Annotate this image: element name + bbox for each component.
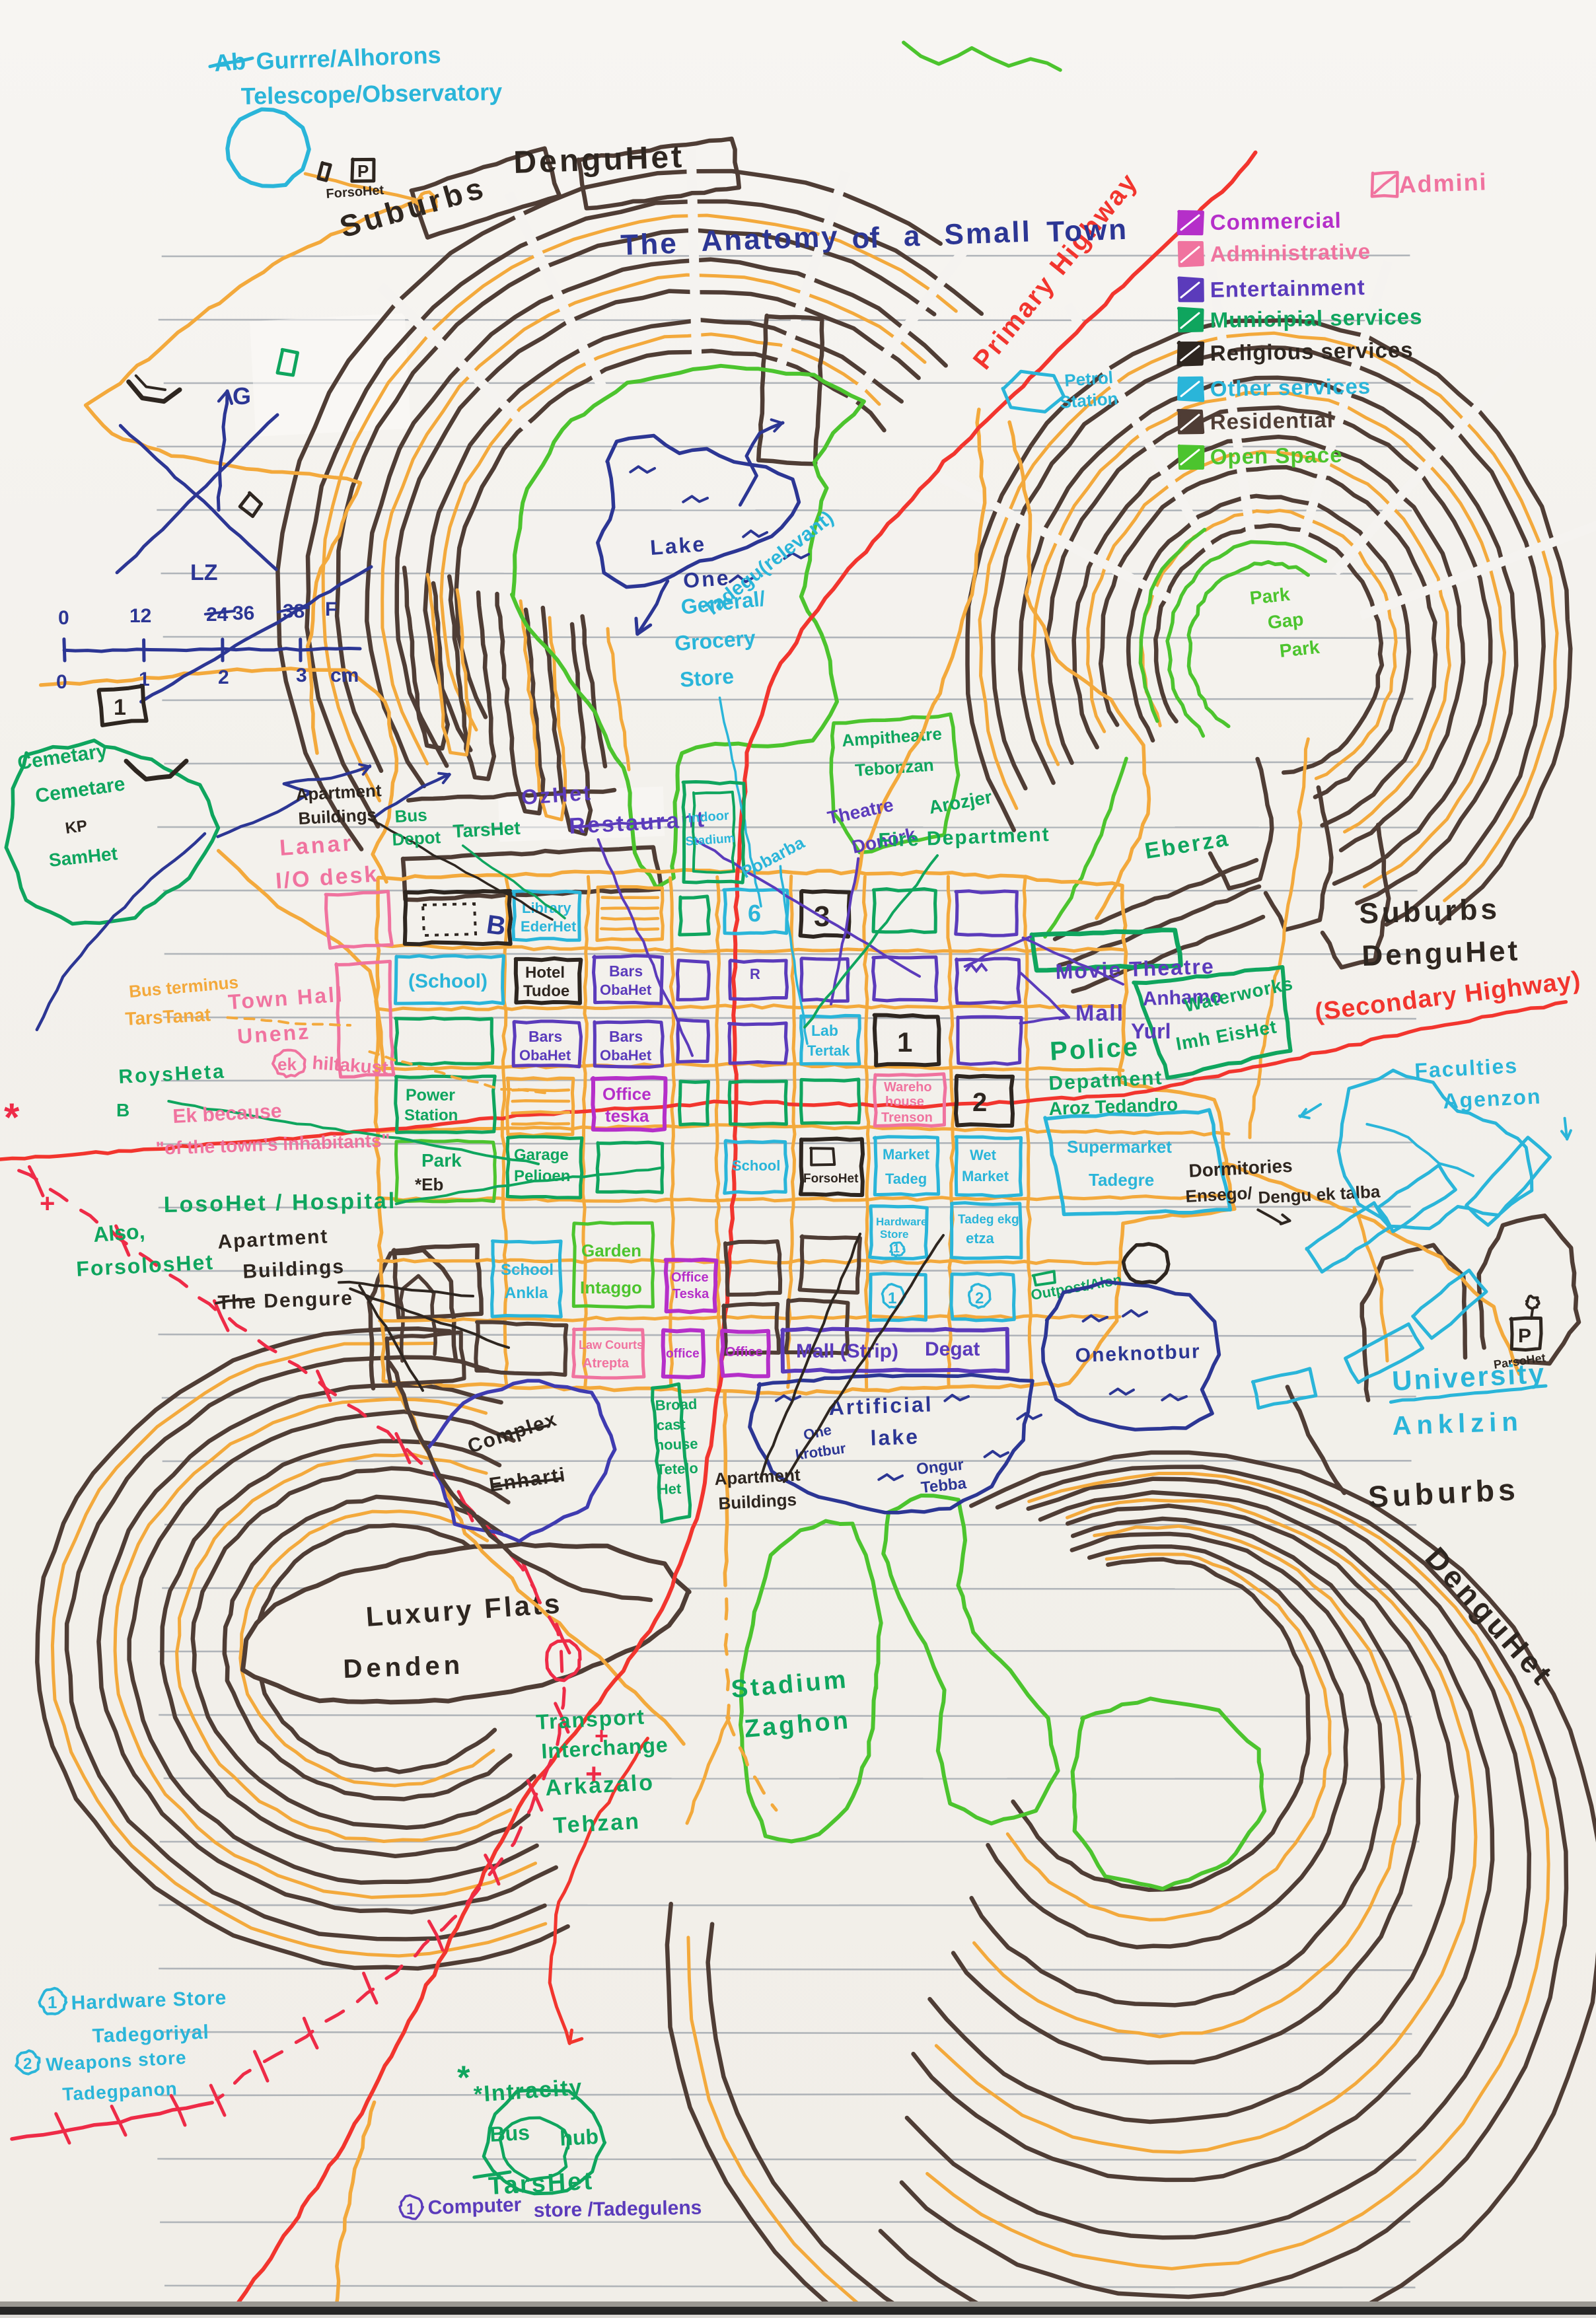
svg-text:Store: Store	[880, 1228, 908, 1241]
svg-text:Indoor: Indoor	[688, 809, 730, 826]
svg-text:Other services: Other services	[1210, 374, 1371, 401]
svg-text:ObaHet: ObaHet	[600, 1047, 652, 1064]
svg-text:1: 1	[406, 2200, 415, 2218]
svg-text:School: School	[732, 1157, 780, 1174]
svg-text:Religious services: Religious services	[1210, 338, 1413, 365]
svg-text:0: 0	[58, 607, 69, 629]
svg-text:Administrative: Administrative	[1210, 239, 1371, 266]
svg-text:LZ: LZ	[190, 560, 218, 585]
svg-text:2: 2	[972, 1088, 987, 1117]
svg-text:Bus: Bus	[489, 2120, 530, 2146]
svg-text:Station: Station	[1059, 388, 1118, 412]
svg-text:of: of	[852, 222, 881, 255]
svg-text:Anklzin: Anklzin	[1392, 1407, 1524, 1441]
svg-text:Hotel: Hotel	[525, 964, 565, 982]
svg-text:Ensego/: Ensego/	[1185, 1183, 1253, 1206]
svg-text:Office: Office	[602, 1084, 651, 1104]
svg-text:ForsoHet: ForsoHet	[803, 1172, 859, 1186]
svg-text:Garden: Garden	[581, 1241, 641, 1260]
svg-text:Intaggo: Intaggo	[580, 1278, 642, 1297]
svg-text:Admini: Admini	[1398, 168, 1488, 198]
svg-text:Tadegre: Tadegre	[1089, 1170, 1154, 1190]
svg-text:a: a	[904, 220, 920, 252]
svg-text:Police: Police	[1049, 1032, 1140, 1066]
svg-text:Market: Market	[962, 1168, 1009, 1184]
svg-text:store /Tadegulens: store /Tadegulens	[534, 2197, 702, 2222]
svg-text:cm: cm	[330, 665, 359, 686]
svg-text:2: 2	[23, 2055, 32, 2073]
svg-text:Anatomy: Anatomy	[701, 221, 840, 258]
svg-text:Municipial services: Municipial services	[1210, 304, 1422, 332]
svg-text:DenguHet: DenguHet	[513, 139, 685, 180]
svg-text:Buildings: Buildings	[718, 1490, 797, 1513]
svg-text:Also,: Also,	[92, 1219, 146, 1247]
svg-text:Park: Park	[421, 1150, 462, 1171]
svg-text:hub: hub	[559, 2124, 598, 2150]
svg-text:teska: teska	[605, 1106, 649, 1126]
svg-text:2: 2	[975, 1289, 984, 1307]
svg-text:house: house	[655, 1435, 698, 1453]
svg-text:Open Space: Open Space	[1210, 443, 1342, 469]
svg-text:Town: Town	[1046, 213, 1129, 248]
svg-text:TarsHet: TarsHet	[453, 818, 521, 842]
svg-text:Bars: Bars	[528, 1028, 562, 1045]
svg-text:F: F	[325, 598, 337, 620]
svg-text:Het: Het	[657, 1480, 682, 1498]
svg-text:Artificial: Artificial	[828, 1393, 933, 1420]
svg-text:*: *	[4, 1095, 20, 1140]
svg-text:R: R	[750, 966, 760, 982]
svg-text:Depot: Depot	[392, 827, 441, 850]
svg-text:+: +	[595, 1722, 608, 1749]
svg-text:Suburbs: Suburbs	[1359, 893, 1501, 930]
svg-text:EderHet: EderHet	[521, 918, 577, 935]
svg-text:Park: Park	[1249, 584, 1291, 608]
svg-text:Lanar: Lanar	[279, 830, 355, 861]
svg-text:Lab: Lab	[811, 1022, 838, 1039]
svg-text:Petrol: Petrol	[1064, 367, 1114, 390]
svg-text:Tadeg: Tadeg	[885, 1171, 927, 1187]
svg-text:Oneknotbur: Oneknotbur	[1075, 1340, 1201, 1367]
svg-text:Bus: Bus	[394, 805, 428, 826]
svg-text:1: 1	[893, 1242, 900, 1255]
svg-text:1: 1	[114, 695, 126, 720]
svg-text:Supermarket: Supermarket	[1067, 1137, 1172, 1157]
svg-text:Trenson: Trenson	[881, 1110, 933, 1125]
svg-text:Atrepta: Atrepta	[583, 1356, 630, 1371]
svg-text:DenguHet: DenguHet	[1361, 935, 1521, 972]
svg-text:Tadeg ekg: Tadeg ekg	[958, 1213, 1019, 1227]
svg-text:Station: Station	[404, 1106, 458, 1124]
svg-text:Office: Office	[725, 1345, 763, 1359]
svg-text:1: 1	[888, 1289, 896, 1307]
svg-text:Denden: Denden	[343, 1651, 464, 1684]
svg-text:Computer: Computer	[427, 2194, 522, 2219]
svg-text:2: 2	[218, 667, 229, 688]
svg-text:Entertainment: Entertainment	[1210, 275, 1365, 302]
svg-text:KP: KP	[64, 817, 89, 838]
svg-text:B: B	[485, 910, 508, 941]
svg-text:12: 12	[129, 605, 151, 627]
svg-text:Gap: Gap	[1266, 608, 1304, 633]
svg-text:38: 38	[283, 600, 305, 622]
svg-text:ObaHet: ObaHet	[519, 1047, 571, 1064]
svg-text:B: B	[116, 1100, 129, 1120]
svg-text:Lake: Lake	[649, 532, 707, 560]
svg-text:Mall: Mall	[1075, 1001, 1124, 1026]
svg-text:1: 1	[897, 1027, 912, 1058]
svg-text:(School): (School)	[408, 970, 488, 992]
svg-text:School: School	[501, 1261, 554, 1279]
svg-text:ObaHet: ObaHet	[600, 982, 652, 998]
svg-text:1: 1	[48, 1992, 57, 2012]
svg-text:office: office	[666, 1347, 700, 1361]
svg-text:Degat: Degat	[925, 1338, 980, 1360]
svg-text:Power: Power	[406, 1086, 455, 1105]
svg-text:OzHet: OzHet	[521, 781, 593, 809]
svg-text:Buildings: Buildings	[298, 805, 377, 828]
svg-text:Store: Store	[679, 664, 735, 692]
svg-text:36: 36	[233, 602, 254, 624]
svg-text:Commercial: Commercial	[1210, 208, 1342, 235]
svg-text:house: house	[885, 1095, 924, 1109]
svg-text:Law Courts: Law Courts	[579, 1338, 643, 1352]
svg-text:Small: Small	[944, 215, 1033, 251]
svg-text:Tertak: Tertak	[807, 1042, 850, 1059]
svg-text:Bars: Bars	[609, 962, 643, 980]
svg-text:*: *	[457, 2059, 470, 2096]
svg-text:etza: etza	[966, 1230, 995, 1247]
svg-text:0: 0	[56, 671, 67, 693]
svg-text:The: The	[620, 227, 679, 262]
svg-text:Office: Office	[671, 1270, 709, 1285]
svg-text:Wareho: Wareho	[884, 1080, 932, 1095]
svg-text:Tadegoriyal: Tadegoriyal	[92, 2021, 209, 2047]
svg-text:P: P	[357, 161, 369, 181]
svg-text:ek: ek	[277, 1054, 297, 1074]
svg-text:Ankla: Ankla	[505, 1284, 548, 1302]
svg-text:Broad: Broad	[655, 1396, 697, 1414]
svg-text:Tetelo: Tetelo	[656, 1460, 698, 1478]
svg-text:Residential: Residential	[1210, 408, 1334, 434]
svg-text:P: P	[1518, 1325, 1531, 1347]
svg-text:Tehzan: Tehzan	[552, 1809, 641, 1838]
svg-text:lake: lake	[870, 1424, 920, 1450]
svg-text:Telescope/Observatory: Telescope/Observatory	[240, 78, 502, 110]
svg-text:G: G	[233, 382, 251, 410]
svg-text:Teska: Teska	[672, 1287, 709, 1301]
svg-text:3: 3	[296, 665, 307, 686]
svg-text:Park: Park	[1278, 637, 1321, 661]
svg-text:Tudoe: Tudoe	[523, 982, 569, 1000]
svg-text:Wet: Wet	[970, 1147, 997, 1163]
svg-text:cast: cast	[656, 1416, 686, 1433]
svg-text:+: +	[40, 1189, 55, 1218]
svg-text:Bars: Bars	[609, 1028, 643, 1045]
svg-text:Hardware: Hardware	[876, 1215, 927, 1228]
svg-text:+: +	[585, 1758, 602, 1790]
svg-text:LosoHet / Hospital: LosoHet / Hospital	[163, 1188, 396, 1217]
svg-text:Market: Market	[883, 1146, 930, 1163]
svg-text:*Eb: *Eb	[415, 1175, 443, 1194]
svg-text:6: 6	[748, 900, 761, 927]
